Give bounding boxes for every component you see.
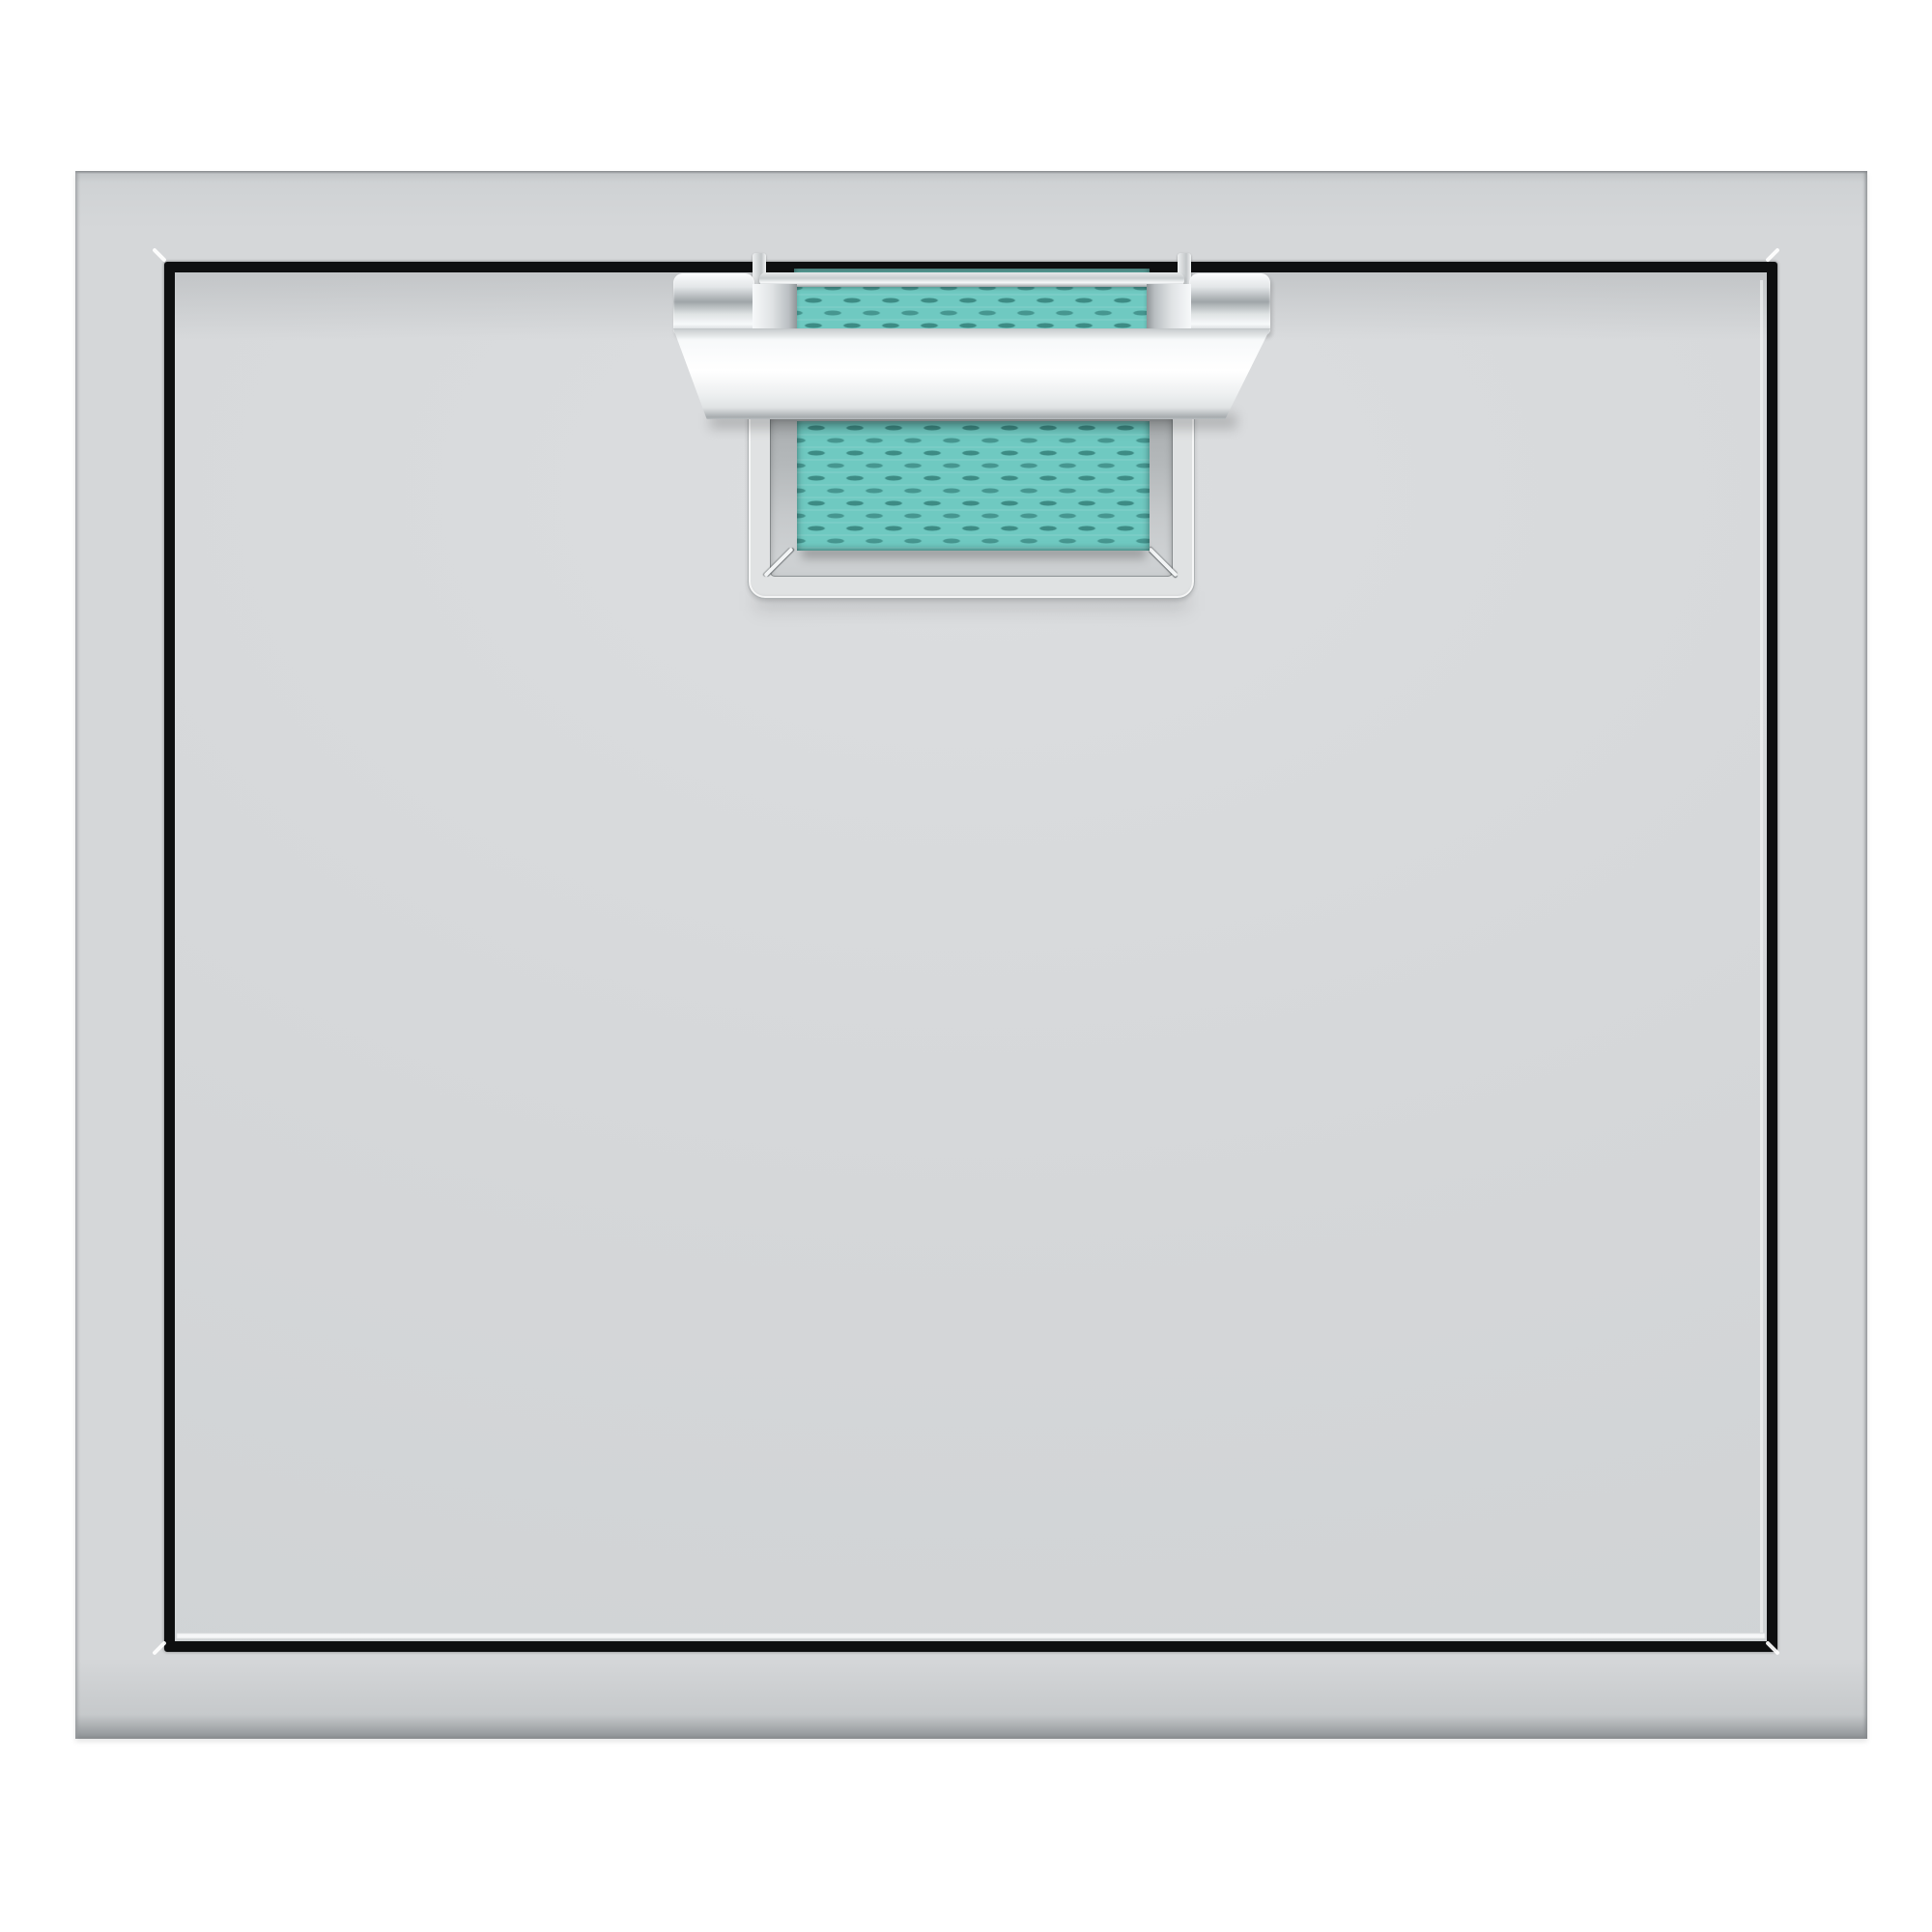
door-bottom-edge-highlight: [177, 1634, 1765, 1638]
handle-hook-right: [1189, 273, 1270, 335]
handle-strap-lower: [797, 421, 1150, 551]
door-right-edge-highlight: [1760, 280, 1763, 1633]
handle-hook-left: [673, 273, 754, 335]
handle-top-flange: [759, 272, 1184, 287]
product-image-canvas: [0, 0, 1932, 1932]
handle-bar: [667, 325, 1277, 421]
